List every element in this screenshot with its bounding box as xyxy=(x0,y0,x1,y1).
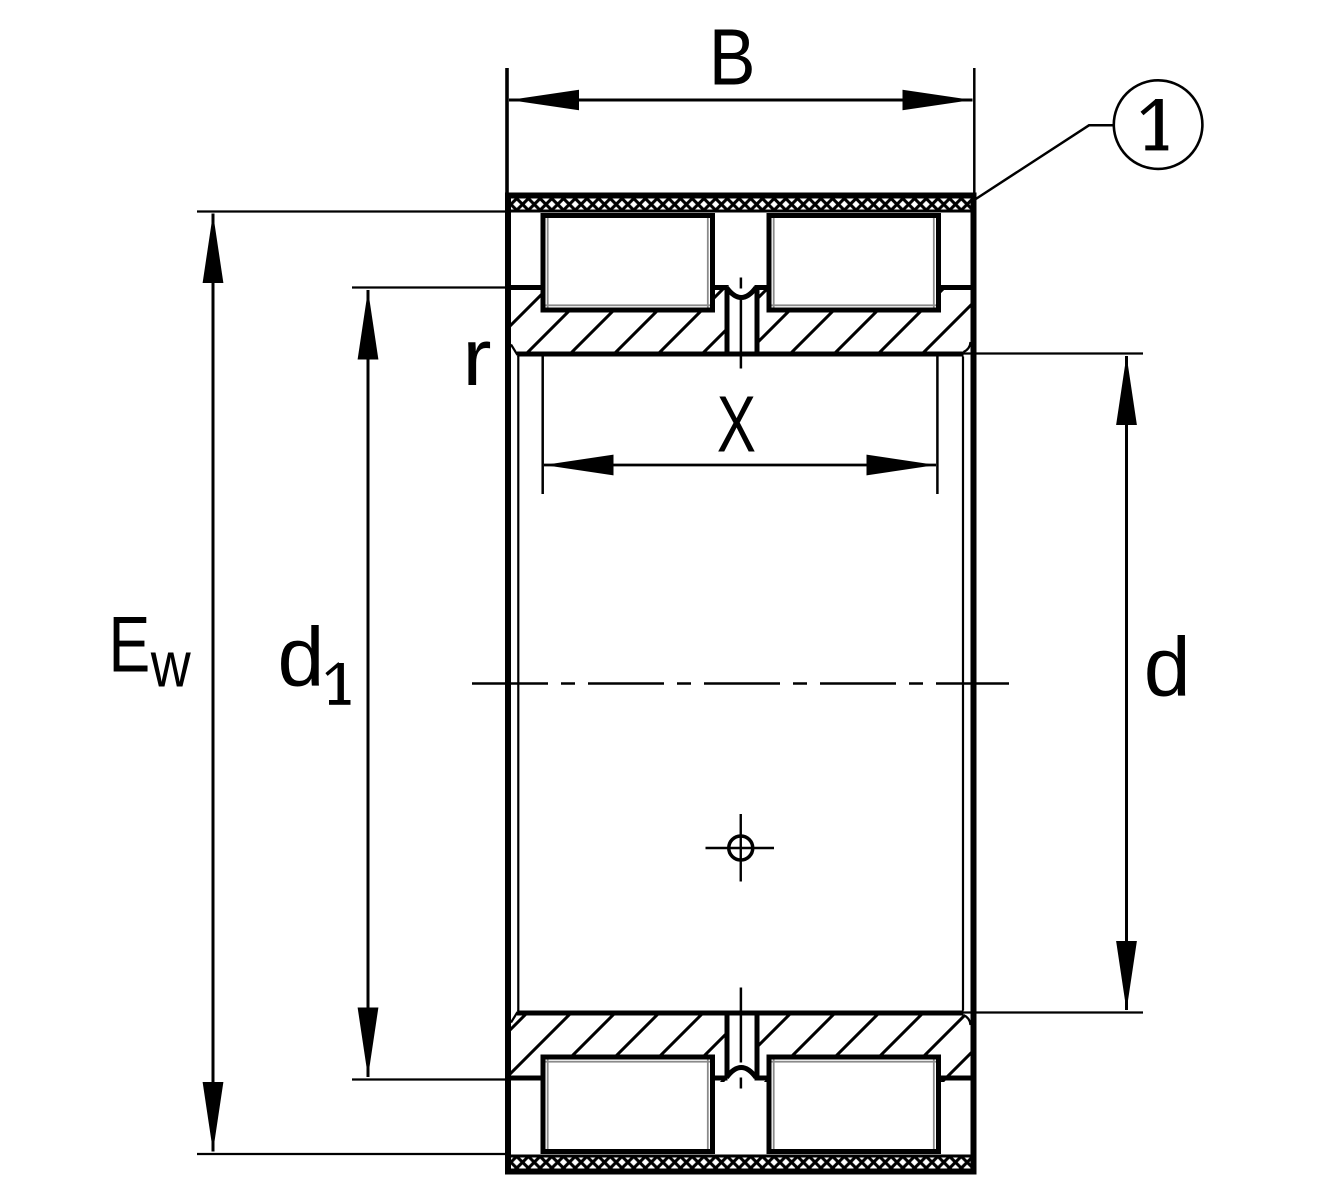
svg-text:X: X xyxy=(717,380,756,469)
svg-text:d: d xyxy=(278,610,325,704)
svg-text:r: r xyxy=(462,312,491,402)
svg-text:w: w xyxy=(150,629,192,701)
svg-text:E: E xyxy=(109,602,151,689)
svg-text:B: B xyxy=(709,12,756,101)
svg-text:d: d xyxy=(1144,620,1191,714)
